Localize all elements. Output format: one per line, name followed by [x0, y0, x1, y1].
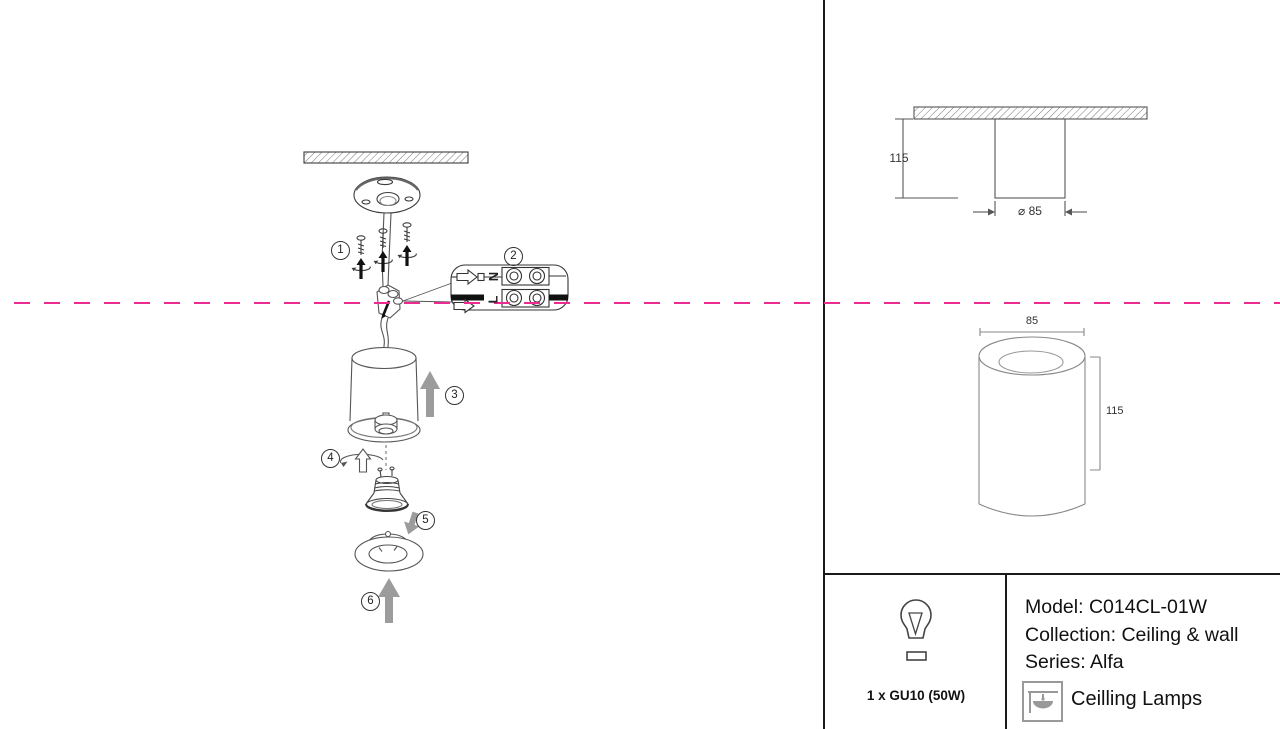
gu10-bulb-icon	[901, 600, 931, 660]
step-badge-3: 3	[445, 386, 464, 405]
mounting-screws	[352, 223, 416, 279]
canopy-plate	[354, 177, 420, 213]
model-line: Model: C014CL-01W	[1025, 594, 1275, 622]
step-badge-4: 4	[321, 449, 340, 468]
dim-front-height: 115	[1106, 405, 1124, 417]
collection-line: Collection: Ceiling & wall	[1025, 622, 1275, 650]
dimension-drawing-front	[979, 328, 1100, 516]
dim-side-diameter: ⌀ 85	[1002, 204, 1058, 218]
ceiling-lamp-icon	[1023, 682, 1062, 721]
ceiling-hatch	[304, 152, 468, 163]
arrow-up-step6	[378, 578, 400, 623]
installation-diagram	[304, 152, 568, 623]
hanging-wire	[382, 213, 391, 286]
dim-front-width: 85	[1017, 315, 1047, 327]
terminal-block	[451, 265, 568, 313]
terminal-label-live: L	[485, 296, 500, 304]
step-badge-5: 5	[416, 511, 435, 530]
terminal-label-neutral: N	[486, 272, 501, 281]
step-badge-2: 2	[504, 247, 523, 266]
dimension-drawing-side	[895, 107, 1147, 216]
instruction-sheet: 1 2 3 4 5 6 N L 115 ⌀ 85 85 115 1 x GU10…	[0, 0, 1280, 729]
trim-ring	[355, 532, 423, 572]
series-line: Series: Alfa	[1025, 649, 1275, 677]
lamp-body	[348, 346, 420, 442]
zoom-leader-lines	[403, 283, 452, 302]
step-badge-6: 6	[361, 592, 380, 611]
product-info: Model: C014CL-01W Collection: Ceiling & …	[1025, 594, 1275, 677]
bulb-spec-label: 1 x GU10 (50W)	[845, 688, 987, 703]
step-badge-1: 1	[331, 241, 350, 260]
wire-connector-junction	[377, 285, 403, 346]
arrow-up-step3	[420, 371, 440, 417]
center-dashed-line	[0, 302, 1280, 304]
category-label: Ceilling Lamps	[1071, 688, 1202, 711]
gu10-bulb	[366, 467, 408, 512]
dim-side-height: 115	[882, 151, 916, 165]
